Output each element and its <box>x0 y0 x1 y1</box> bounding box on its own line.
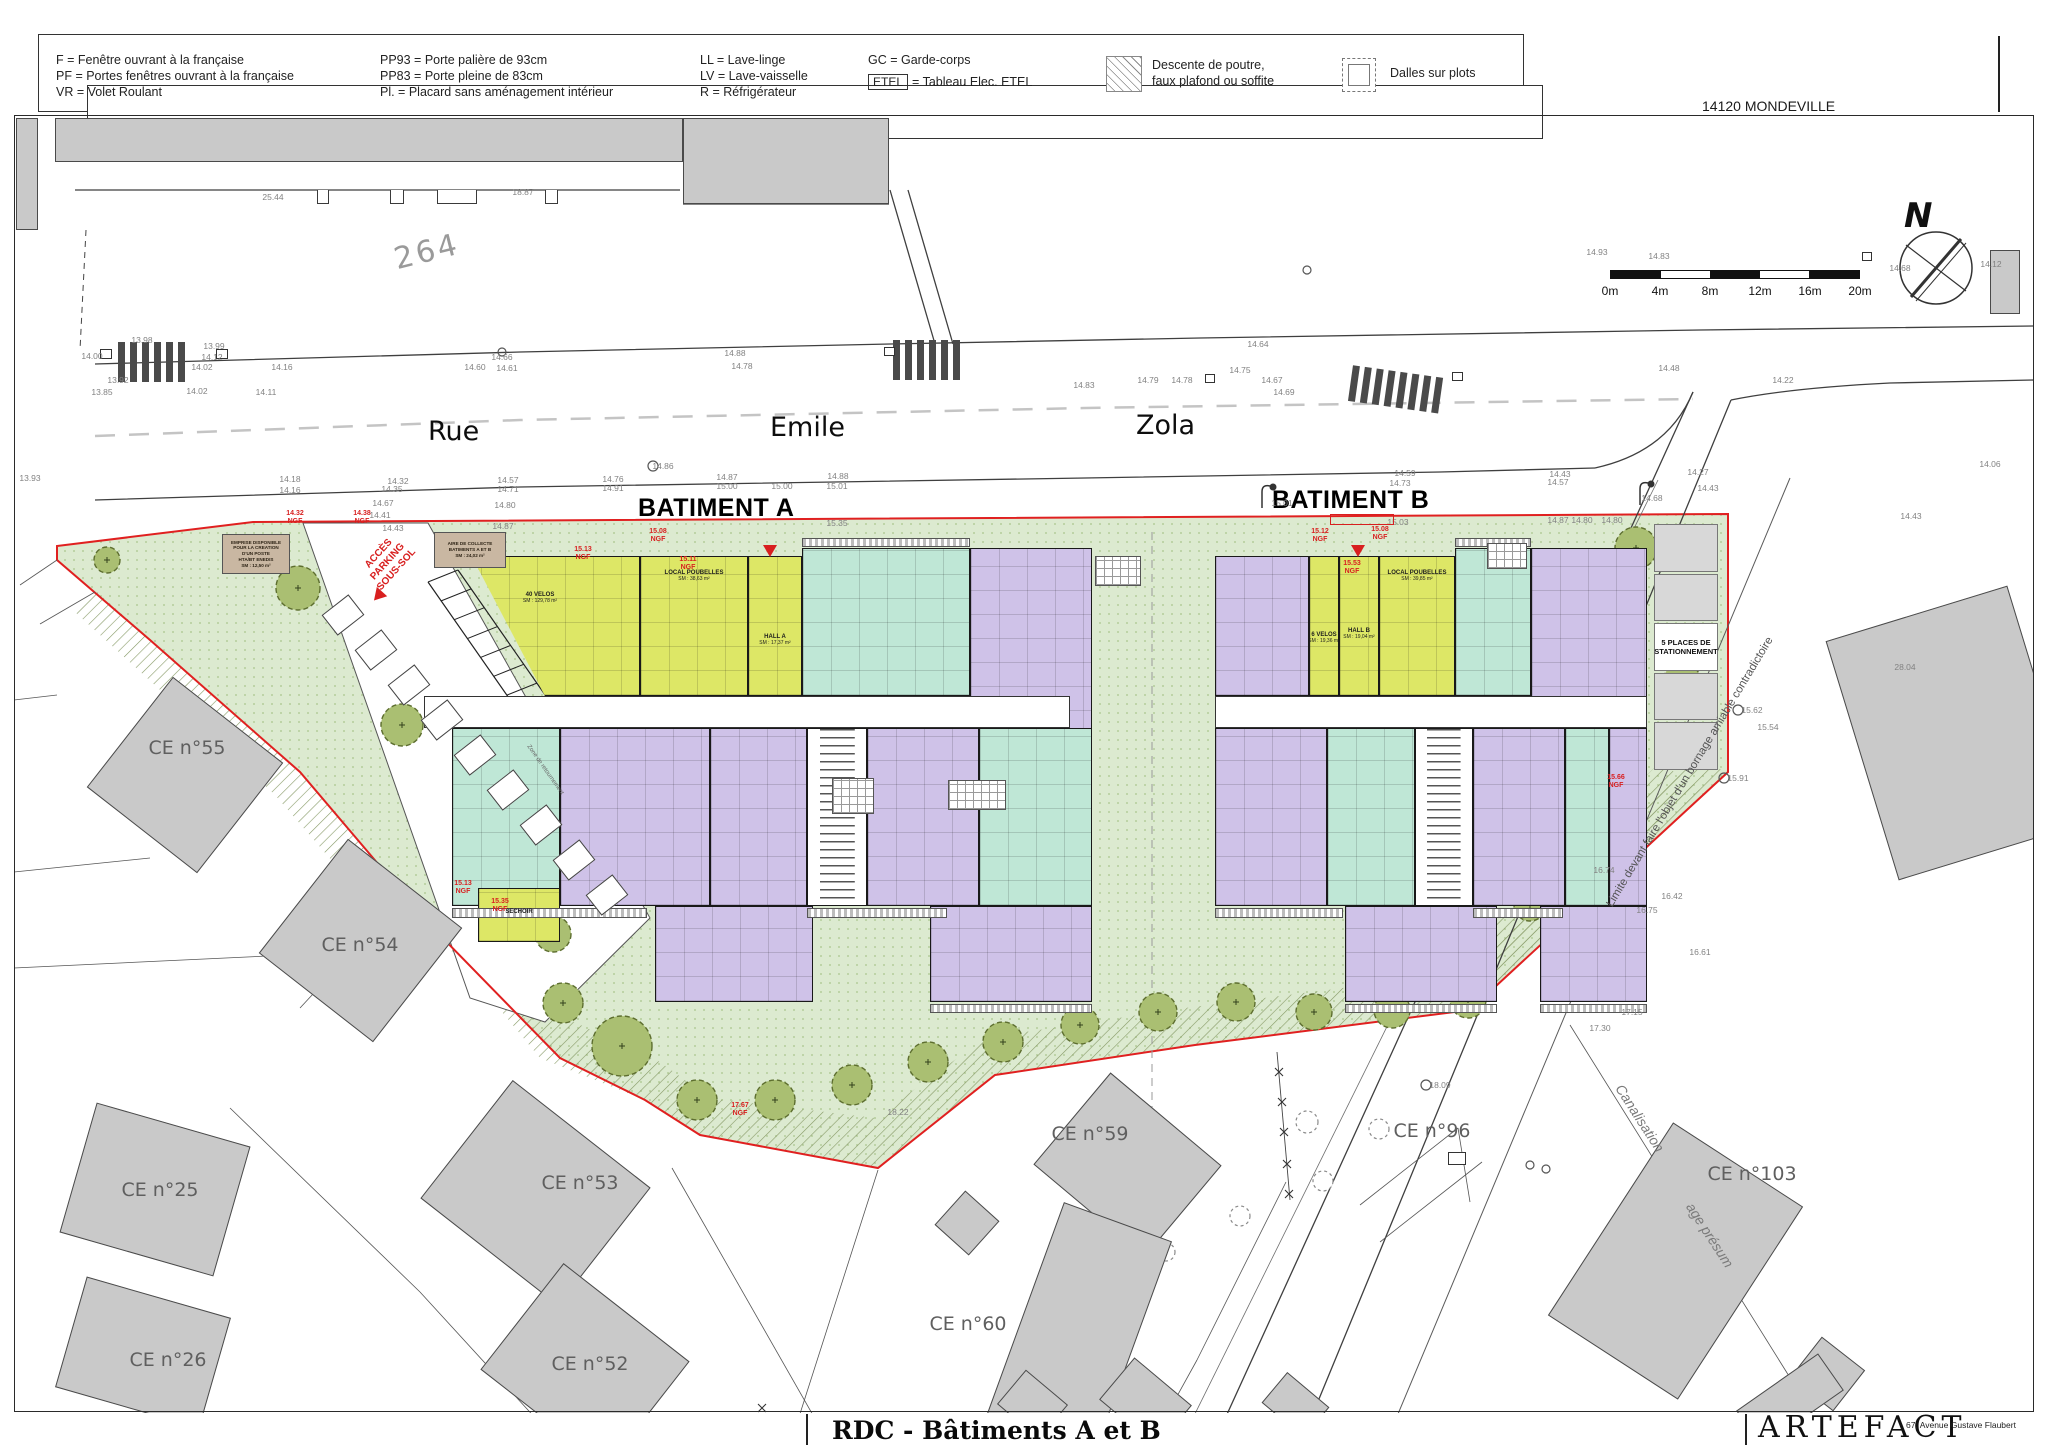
pergola-grid <box>948 780 1006 810</box>
spot-elevation: 14.06 <box>1979 459 2000 469</box>
balcony-strip <box>452 908 647 918</box>
project-location: 14120 MONDEVILLE <box>1702 98 1835 114</box>
room-label: SECHOIR <box>505 909 532 915</box>
utility-box <box>884 347 895 356</box>
hatch-swatch-icon <box>1106 56 1142 92</box>
ngf-marker: 15.35NGF <box>491 898 509 914</box>
scale-bar-label: 4m <box>1652 284 1669 298</box>
crosswalk-stripe <box>130 342 137 382</box>
spot-elevation: 13.93 <box>19 473 40 483</box>
spot-elevation: 14.93 <box>1586 247 1607 257</box>
spot-elevation: 15.35 <box>826 518 847 528</box>
crosswalk-stripe <box>929 340 936 380</box>
facade-recess <box>390 190 404 204</box>
spot-elevation: 14.71 <box>497 484 518 494</box>
spot-elevation: 14.86 <box>652 461 673 471</box>
spot-elevation: 15.01 <box>1271 498 1292 508</box>
ngf-marker: 15.66NGF <box>1607 774 1625 790</box>
spot-elevation: 14.88 <box>827 471 848 481</box>
plan-title: RDC - Bâtiments A et B <box>832 1416 1161 1445</box>
spot-elevation: 16.42 <box>1661 891 1682 901</box>
spot-elevation: 13.92 <box>107 375 128 385</box>
legend-item: F = Fenêtre ouvrant à la française <box>56 53 244 67</box>
spot-elevation: 14.12 <box>1980 259 2001 269</box>
etel-symbol: ETEL <box>868 74 908 90</box>
legend-item: PF = Portes fenêtres ouvrant à la frança… <box>56 69 294 83</box>
street-name: Zola <box>1136 410 1195 441</box>
pergola-grid <box>1095 556 1141 586</box>
parcel-label: CE n°103 <box>1707 1163 1796 1185</box>
floorplan-unit <box>1565 728 1609 906</box>
legend-item: R = Réfrigérateur <box>700 85 796 99</box>
ngf-marker: 15.11NGF <box>679 556 696 572</box>
balcony-strip <box>807 908 947 918</box>
spot-elevation: 25.44 <box>262 192 283 202</box>
ngf-marker: 15.08NGF <box>1371 526 1389 542</box>
etel-text: = Tableau Elec. ETEL <box>912 75 1032 89</box>
floorplan-unit <box>1339 556 1379 696</box>
parcel-label: CE n°54 <box>321 934 398 956</box>
street-name: Emile <box>770 412 845 443</box>
crosswalk-stripe <box>1372 369 1384 406</box>
legend-etel: ETEL= Tableau Elec. ETEL <box>868 74 1032 90</box>
spot-elevation: 13.85 <box>91 387 112 397</box>
scale-bar-label: 12m <box>1748 284 1771 298</box>
site-plan-sheet: GC = Garde-corps ETEL= Tableau Elec. ETE… <box>0 0 2048 1445</box>
room-label: 40 VELOSSM : 129,78 m² <box>523 592 557 604</box>
crosswalk-stripe <box>1419 375 1431 412</box>
floorplan-unit <box>655 906 813 1002</box>
parcel-label: CE n°55 <box>148 737 225 759</box>
spot-elevation: 18.09 <box>1429 1080 1450 1090</box>
ngf-marker: 15.08NGF <box>649 528 667 544</box>
spot-elevation: 14.67 <box>1261 375 1282 385</box>
spot-elevation: 17.15 <box>1621 1007 1642 1017</box>
titleblock-divider <box>806 1414 808 1445</box>
crosswalk-stripe <box>1384 370 1396 407</box>
parking-places-label: 5 PLACES DESTATIONNEMENT <box>1654 623 1718 671</box>
scale-bar-segment <box>1661 271 1711 278</box>
spot-elevation: 14.88 <box>724 348 745 358</box>
spot-elevation: 14.78 <box>1171 375 1192 385</box>
spot-elevation: 14.83 <box>1648 251 1669 261</box>
spot-elevation: 13.98 <box>131 335 152 345</box>
legend-hatch-l2: faux plafond ou soffite <box>1152 74 1274 88</box>
facade-recess <box>317 190 329 204</box>
entrance-red-box <box>1330 514 1394 525</box>
crosswalk-stripe <box>1396 372 1408 409</box>
crosswalk-stripe <box>905 340 912 380</box>
spot-elevation: 15.91 <box>1727 773 1748 783</box>
spot-elevation: 14.35 <box>381 484 402 494</box>
spot-elevation: 16.74 <box>1593 865 1614 875</box>
spot-elevation: 18.22 <box>887 1107 908 1117</box>
parcel-label: CE n°59 <box>1051 1123 1128 1145</box>
spot-elevation: 15.01 <box>826 481 847 491</box>
spot-elevation: 16.75 <box>1636 905 1657 915</box>
titleblock-divider-right <box>1745 1414 1747 1445</box>
spot-elevation: 14.61 <box>496 363 517 373</box>
parcel-label: CE n°60 <box>929 1313 1006 1335</box>
crosswalk-stripe <box>917 340 924 380</box>
crosswalk-stripe <box>941 340 948 380</box>
utility-box <box>1862 252 1872 261</box>
building-label: BATIMENT A <box>638 494 794 523</box>
legend-item: PP93 = Porte palière de 93cm <box>380 53 547 67</box>
spot-elevation: 14.67 <box>372 498 393 508</box>
spot-elevation: 14.68 <box>1889 263 1910 273</box>
floorplan-unit <box>807 728 867 906</box>
north-arrow-label: N <box>1904 196 1932 236</box>
spot-elevation: 14.83 <box>1073 380 1094 390</box>
spot-elevation: 14.68 <box>1641 493 1662 503</box>
spot-elevation: 14.00 <box>81 351 102 361</box>
spot-elevation: 14.57 <box>1547 477 1568 487</box>
spot-elevation: 14.02 <box>191 362 212 372</box>
spot-elevation: 13.99 <box>203 341 224 351</box>
room-label: HALL ASM : 17,37 m² <box>759 634 790 646</box>
scale-bar-segment <box>1760 271 1810 278</box>
floorplan-unit <box>1327 728 1415 906</box>
entrance-marker-icon <box>1351 545 1365 557</box>
spot-elevation: 14.43 <box>1697 483 1718 493</box>
floorplan-unit <box>560 728 710 906</box>
floorplan-unit <box>424 696 1070 728</box>
crosswalk-stripe <box>142 342 149 382</box>
crosswalk-stripe <box>1407 374 1419 411</box>
scale-bar-label: 0m <box>1602 284 1619 298</box>
ngf-marker: 15.13NGF <box>574 546 592 562</box>
ngf-marker: 15.13NGF <box>454 880 472 896</box>
floorplan-unit <box>802 548 970 696</box>
room-label: HALL BSM : 19,04 m² <box>1343 628 1374 640</box>
crosswalk-stripe <box>893 340 900 380</box>
ngf-marker: 15.12NGF <box>1311 528 1329 544</box>
scale-bar <box>1610 270 1860 279</box>
floorplan-unit <box>867 728 979 906</box>
spot-elevation: 14.78 <box>731 361 752 371</box>
floorplan-unit <box>1215 696 1647 728</box>
spot-elevation: 14.22 <box>1772 375 1793 385</box>
building-label: BATIMENT B <box>1272 486 1429 515</box>
floorplan-unit <box>710 728 807 906</box>
scale-bar-label: 16m <box>1798 284 1821 298</box>
legend-item: LV = Lave-vaisselle <box>700 69 808 83</box>
parcel-label: CE n°52 <box>551 1353 628 1375</box>
spot-elevation: 14.41 <box>369 510 390 520</box>
legend-gc: GC = Garde-corps <box>868 53 970 67</box>
spot-elevation: 14.79 <box>1137 375 1158 385</box>
floorplan-unit <box>930 906 1092 1002</box>
site-map: 5 PLACES DESTATIONNEMENTEMPRISE DISPONIB… <box>0 0 2048 1445</box>
neighbor-building <box>55 118 683 162</box>
spot-elevation: 14.75 <box>1229 365 1250 375</box>
spot-elevation: 15.54 <box>1757 722 1778 732</box>
spot-elevation: 14.60 <box>464 362 485 372</box>
spot-elevation: 14.73 <box>1389 478 1410 488</box>
utility-box <box>1452 372 1463 381</box>
scale-bar-segment <box>1710 271 1760 278</box>
parcel-label: CE n°53 <box>541 1172 618 1194</box>
balcony-strip <box>1473 908 1563 918</box>
spot-elevation: 16.61 <box>1689 947 1710 957</box>
floorplan-unit <box>1473 728 1565 906</box>
spot-elevation: 28.04 <box>1894 662 1915 672</box>
floorplan-unit <box>1415 728 1473 906</box>
floorplan-unit <box>1215 728 1327 906</box>
pergola-grid <box>1487 543 1527 569</box>
parking-place <box>1654 524 1718 572</box>
legend-item: LL = Lave-linge <box>700 53 785 67</box>
floorplan-unit <box>748 556 802 696</box>
spot-elevation: 14.48 <box>1658 363 1679 373</box>
parcel-label: CE n°25 <box>121 1179 198 1201</box>
balcony-strip <box>802 538 970 547</box>
architect-address: 67, Avenue Gustave Flaubert <box>1906 1420 2016 1430</box>
scale-bar-segment <box>1809 271 1859 278</box>
utility-zone: EMPRISE DISPONIBLEPOUR LA CREATIOND'UN P… <box>222 534 290 574</box>
floorplan-unit <box>1345 906 1497 1002</box>
crosswalk-stripe <box>1360 367 1372 404</box>
floorplan-unit <box>1540 906 1647 1002</box>
floorplan-unit <box>1215 556 1309 696</box>
crosswalk-stripe <box>154 342 161 382</box>
spot-elevation: 14.18 <box>279 474 300 484</box>
ngf-marker: 14.32NGF <box>286 510 304 526</box>
ngf-marker: 17.67NGF <box>731 1102 749 1118</box>
utility-box <box>1205 374 1215 383</box>
header-divider <box>1998 36 2000 112</box>
floorplan-unit <box>1455 548 1531 696</box>
parcel-label: CE n°96 <box>1393 1120 1470 1142</box>
room-label: LOCAL POUBELLESSM : 39,85 m² <box>1388 570 1447 582</box>
neighbor-building <box>683 118 889 204</box>
balcony-strip <box>930 1004 1092 1013</box>
scale-bar-label: 20m <box>1848 284 1871 298</box>
balcony-strip <box>1215 908 1343 918</box>
spot-elevation: 14.59 <box>1394 468 1415 478</box>
room-label: 6 VELOSSM : 19,36 m² <box>1308 632 1339 644</box>
spot-elevation: 14.16 <box>279 485 300 495</box>
crosswalk <box>118 342 196 382</box>
spot-elevation: 14.43 <box>1900 511 1921 521</box>
spot-elevation: 15.00 <box>716 481 737 491</box>
floorplan-unit <box>1309 556 1339 696</box>
utility-zone: AIRE DE COLLECTEBATIMENTS A ET BSM : 24,… <box>434 532 506 568</box>
spot-elevation: 18.87 <box>512 187 533 197</box>
spot-elevation: 14.27 <box>1687 467 1708 477</box>
facade-recess <box>437 190 477 204</box>
facade-recess <box>545 190 558 204</box>
spot-elevation: 14.16 <box>271 362 292 372</box>
spot-elevation: 14.02 <box>186 386 207 396</box>
ngf-marker: 15.53NGF <box>1343 560 1361 576</box>
legend-plots: Dalles sur plots <box>1390 66 1475 80</box>
crosswalk <box>893 340 967 380</box>
balcony-strip <box>1345 1004 1497 1013</box>
entrance-marker-icon <box>763 545 777 557</box>
neighbor-building <box>16 118 38 230</box>
legend-item: PP83 = Porte pleine de 83cm <box>380 69 543 83</box>
parking-place <box>1654 574 1718 622</box>
spot-elevation: 14.11 <box>256 387 277 397</box>
plots-swatch-icon <box>1342 58 1376 92</box>
spot-elevation: 14.12 <box>201 352 222 362</box>
utility-box <box>1448 1152 1466 1165</box>
legend-item: Pl. = Placard sans aménagement intérieur <box>380 85 613 99</box>
spot-elevation: 15.62 <box>1741 705 1762 715</box>
parcel-label: CE n°26 <box>129 1349 206 1371</box>
spot-elevation: 14.91 <box>602 483 623 493</box>
legend-item: VR = Volet Roulant <box>56 85 162 99</box>
spot-elevation: 14.80 <box>494 500 515 510</box>
crosswalk-stripe <box>166 342 173 382</box>
spot-elevation: 15.00 <box>771 481 792 491</box>
street-name: Rue <box>428 416 479 447</box>
scale-bar-segment <box>1611 271 1661 278</box>
spot-elevation: 14.64 <box>1247 339 1268 349</box>
scale-bar-label: 8m <box>1702 284 1719 298</box>
spot-elevation: 14.87 <box>492 521 513 531</box>
crosswalk-stripe <box>178 342 185 382</box>
spot-elevation: 14.80 <box>1571 515 1592 525</box>
spot-elevation: 14.87 <box>1547 515 1568 525</box>
crosswalk-stripe <box>1431 377 1443 414</box>
spot-elevation: 14.69 <box>1273 387 1294 397</box>
parking-place <box>1654 673 1718 721</box>
legend-hatch-l1: Descente de poutre, <box>1152 58 1265 72</box>
pergola-grid <box>832 778 874 814</box>
ngf-marker: 14.38NGF <box>353 510 371 526</box>
spot-elevation: 14.80 <box>1601 515 1622 525</box>
spot-elevation: 17.30 <box>1589 1023 1610 1033</box>
crosswalk-stripe <box>953 340 960 380</box>
floorplan-unit <box>979 728 1092 906</box>
spot-elevation: 14.66 <box>491 352 512 362</box>
